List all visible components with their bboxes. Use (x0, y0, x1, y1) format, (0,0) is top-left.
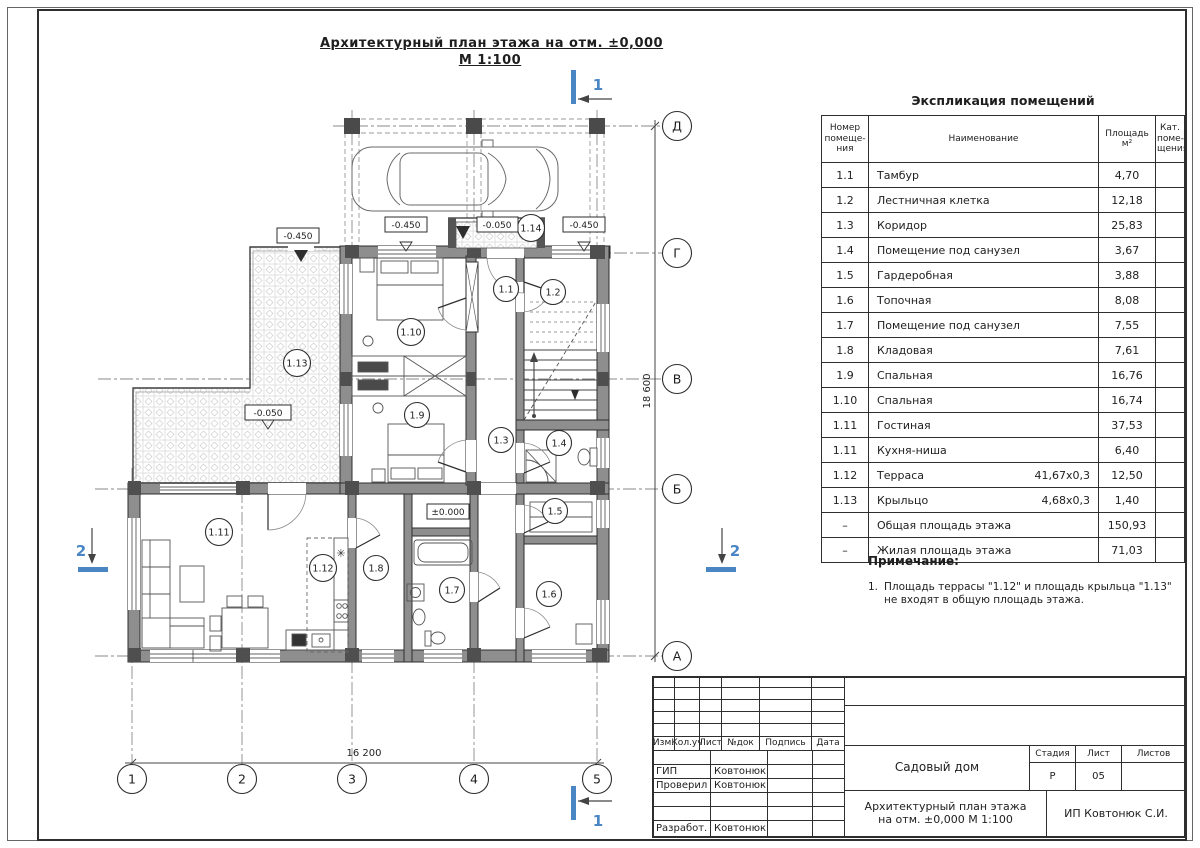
room-area-cell: 16,74 (1099, 388, 1156, 413)
dimension-bottom: 16 200 (125, 748, 604, 767)
room-size: 41,67x0,3 (1035, 469, 1091, 482)
room-name: Лестничная клетка (877, 194, 990, 207)
room-label: 1.11 (208, 528, 229, 539)
room-name-cell: Помещение под санузел (869, 313, 1099, 338)
table-row: 1.2 Лестничная клетка 12,18 (822, 188, 1185, 213)
svg-text:Б: Б (673, 482, 682, 497)
room-number-cell: 1.8 (822, 338, 869, 363)
room-name: Общая площадь этажа (877, 519, 1011, 532)
room-name-cell: Спальная (869, 363, 1099, 388)
table-row: 1.3 Коридор 25,83 (822, 213, 1185, 238)
room-category-cell (1156, 463, 1185, 488)
note-title: Примечание: (868, 554, 1198, 568)
room-area-cell: 7,55 (1099, 313, 1156, 338)
room-number-cell: 1.2 (822, 188, 869, 213)
room-number-cell: 1.11 (822, 438, 869, 463)
svg-text:4: 4 (470, 772, 478, 787)
table-row: 1.5 Гардеробная 3,88 (822, 263, 1185, 288)
vent-shaft (466, 262, 478, 332)
wardrobes (352, 356, 466, 396)
svg-text:-0.450: -0.450 (283, 232, 312, 242)
svg-text:2: 2 (76, 542, 86, 560)
room-area-cell: 150,93 (1099, 513, 1156, 538)
room-name-cell: Общая площадь этажа (869, 513, 1099, 538)
room-name-cell: Крыльцо4,68x0,3 (869, 488, 1099, 513)
drawing-title: Архитектурный план этажа на отм. ±0,000 … (320, 36, 660, 68)
room-name-cell: Лестничная клетка (869, 188, 1099, 213)
fridge-icon: ✳ (336, 547, 345, 560)
svg-text:1: 1 (593, 812, 603, 830)
room-label: 1.12 (312, 564, 333, 575)
terrace-entry-gap (288, 244, 314, 251)
svg-text:-0.450: -0.450 (391, 221, 420, 231)
drawing-title-scale: М 1:100 (459, 53, 521, 68)
room-number-cell: 1.5 (822, 263, 869, 288)
room-area-cell: 12,18 (1099, 188, 1156, 213)
room-label: 1.7 (444, 586, 459, 597)
table-row: 1.4 Помещение под санузел 3,67 (822, 238, 1185, 263)
drawing-sheet: ✳ (0, 0, 1200, 848)
carport-column (466, 118, 482, 134)
room-name-cell: Терраса41,67x0,3 (869, 463, 1099, 488)
room-name: Кладовая (877, 344, 933, 357)
svg-text:18 600: 18 600 (642, 374, 653, 409)
nightstand (372, 469, 385, 482)
room-category-cell (1156, 438, 1185, 463)
svg-text:-0.450: -0.450 (569, 221, 598, 231)
svg-text:5: 5 (593, 772, 601, 787)
room-area-cell: 4,70 (1099, 163, 1156, 188)
table-row: 1.8 Кладовая 7,61 (822, 338, 1185, 363)
room-number-cell: 1.13 (822, 488, 869, 513)
room-area-cell: 3,67 (1099, 238, 1156, 263)
room-number-cell: 1.12 (822, 463, 869, 488)
carport-column (589, 118, 605, 134)
note-block: Примечание: 1. Площадь террасы "1.12" и … (868, 554, 1198, 607)
room-name: Тамбур (877, 169, 919, 182)
boiler (576, 624, 592, 644)
stairs (524, 300, 597, 420)
room-name-cell: Тамбур (869, 163, 1099, 188)
svg-text:2: 2 (730, 542, 740, 560)
table-row: 1.13 Крыльцо4,68x0,3 1,40 (822, 488, 1185, 513)
table-row: – Общая площадь этажа 150,93 (822, 513, 1185, 538)
room-category-cell (1156, 238, 1185, 263)
col-header-name: Наименование (869, 116, 1099, 163)
nightstand (360, 258, 374, 272)
room-number-cell: 1.3 (822, 213, 869, 238)
room-name-cell: Топочная (869, 288, 1099, 313)
table-row: 1.7 Помещение под санузел 7,55 (822, 313, 1185, 338)
bed (377, 258, 443, 320)
section-mark-1-top: 1 (571, 70, 612, 104)
room-category-cell (1156, 513, 1185, 538)
room-label: 1.10 (400, 328, 421, 339)
svg-text:В: В (673, 372, 682, 387)
table-row: 1.9 Спальная 16,76 (822, 363, 1185, 388)
svg-text:Д: Д (672, 119, 682, 134)
room-name: Спальная (877, 369, 933, 382)
room-area-cell: 37,53 (1099, 413, 1156, 438)
room-name: Терраса (877, 469, 924, 482)
room-name-cell: Кладовая (869, 338, 1099, 363)
col-header-number: Номер помеще- ния (822, 116, 869, 163)
room-category-cell (1156, 313, 1185, 338)
room-area-cell: 16,76 (1099, 363, 1156, 388)
room-label: 1.14 (520, 224, 541, 235)
room-category-cell (1156, 363, 1185, 388)
room-category-cell (1156, 388, 1185, 413)
room-number-cell: – (822, 538, 869, 563)
terrace-area (133, 244, 345, 483)
dining-set (210, 596, 268, 651)
room-label: 1.2 (545, 288, 560, 299)
note-item-number: 1. (868, 581, 878, 607)
room-name-cell: Гардеробная (869, 263, 1099, 288)
plant (363, 336, 373, 346)
room-area-cell: 12,50 (1099, 463, 1156, 488)
room-label: 1.5 (547, 507, 562, 518)
room-category-cell (1156, 413, 1185, 438)
svg-text:Г: Г (673, 246, 681, 261)
section-mark-2-right: 2 (706, 528, 740, 572)
room-label: 1.3 (493, 436, 508, 447)
room-area-cell: 8,08 (1099, 288, 1156, 313)
room-label: 1.1 (498, 285, 513, 296)
sofa (142, 540, 204, 648)
svg-text:3: 3 (348, 772, 356, 787)
room-area-cell: 7,61 (1099, 338, 1156, 363)
room-category-cell (1156, 213, 1185, 238)
drawing-title-line1: Архитектурный план этажа на отм. ±0,000 (320, 36, 660, 51)
room-area-cell: 6,40 (1099, 438, 1156, 463)
room-name: Помещение под санузел (877, 319, 1020, 332)
room-name-cell: Гостиная (869, 413, 1099, 438)
room-name: Гардеробная (877, 269, 953, 282)
room-number-cell: 1.9 (822, 363, 869, 388)
room-number-cell: 1.10 (822, 388, 869, 413)
room-number-cell: 1.1 (822, 163, 869, 188)
room-category-cell (1156, 488, 1185, 513)
car-icon (352, 140, 558, 218)
room-label: 1.4 (551, 439, 566, 450)
title-block: Изм. Кол.уч Лист №док Подпись Дата ГИП К… (652, 676, 1186, 838)
title-block-border (652, 676, 1186, 838)
room-area-cell: 1,40 (1099, 488, 1156, 513)
room-name: Кухня-ниша (877, 444, 947, 457)
explication-table: Номер помеще- ния Наименование Площадь м… (821, 115, 1185, 563)
dimension-right: 18 600 (642, 120, 659, 662)
room-name-cell: Коридор (869, 213, 1099, 238)
room-label: 1.8 (368, 564, 383, 575)
carport-column (344, 118, 360, 134)
room-label: 1.6 (541, 590, 556, 601)
room-category-cell (1156, 163, 1185, 188)
room-name: Гостиная (877, 419, 931, 432)
room-area-cell: 25,83 (1099, 213, 1156, 238)
svg-text:-0.050: -0.050 (253, 409, 282, 419)
room-number-cell: 1.6 (822, 288, 869, 313)
room-number-cell: 1.4 (822, 238, 869, 263)
table-row: 1.10 Спальная 16,74 (822, 388, 1185, 413)
svg-text:1: 1 (593, 76, 603, 94)
table-row: 1.11 Кухня-ниша 6,40 (822, 438, 1185, 463)
coffee-table (180, 566, 204, 602)
room-name-cell: Спальная (869, 388, 1099, 413)
room-number-cell: 1.11 (822, 413, 869, 438)
room-label: 1.9 (409, 411, 424, 422)
room-name: Крыльцо (877, 494, 928, 507)
axis-bubbles-right: Д Г В Б А (663, 112, 692, 671)
svg-text:16 200: 16 200 (347, 748, 382, 759)
note-item-text: Площадь террасы "1.12" и площадь крыльца… (884, 581, 1172, 607)
room-name-cell: Кухня-ниша (869, 438, 1099, 463)
table-row: 1.1 Тамбур 4,70 (822, 163, 1185, 188)
room-name: Помещение под санузел (877, 244, 1020, 257)
explication-title: Экспликация помещений (821, 93, 1185, 108)
svg-text:-0.050: -0.050 (482, 221, 511, 231)
col-header-category: Кат. поме- щения (1156, 116, 1185, 163)
room-size: 4,68x0,3 (1042, 494, 1091, 507)
bed (388, 424, 444, 482)
room-category-cell (1156, 263, 1185, 288)
room-category-cell (1156, 288, 1185, 313)
room-name: Топочная (877, 294, 931, 307)
room-area-cell: 3,88 (1099, 263, 1156, 288)
room-category-cell (1156, 338, 1185, 363)
room-name-cell: Помещение под санузел (869, 238, 1099, 263)
axis-bubbles-bottom: 1 2 3 4 5 (118, 765, 612, 794)
col-header-area: Площадь м² (1099, 116, 1156, 163)
room-name: Коридор (877, 219, 927, 232)
svg-text:2: 2 (238, 772, 246, 787)
svg-text:А: А (673, 649, 682, 664)
room-category-cell (1156, 188, 1185, 213)
room-number-cell: 1.7 (822, 313, 869, 338)
room-name: Спальная (877, 394, 933, 407)
room-label: 1.13 (286, 359, 307, 370)
svg-text:±0.000: ±0.000 (431, 508, 465, 518)
room-number-cell: – (822, 513, 869, 538)
svg-text:1: 1 (128, 772, 136, 787)
table-row: 1.11 Гостиная 37,53 (822, 413, 1185, 438)
plant (373, 403, 383, 413)
section-mark-2-left: 2 (76, 528, 108, 572)
explication-table-block: Экспликация помещений Номер помеще- ния … (821, 93, 1185, 563)
table-row: 1.6 Топочная 8,08 (822, 288, 1185, 313)
table-row: 1.12 Терраса41,67x0,3 12,50 (822, 463, 1185, 488)
